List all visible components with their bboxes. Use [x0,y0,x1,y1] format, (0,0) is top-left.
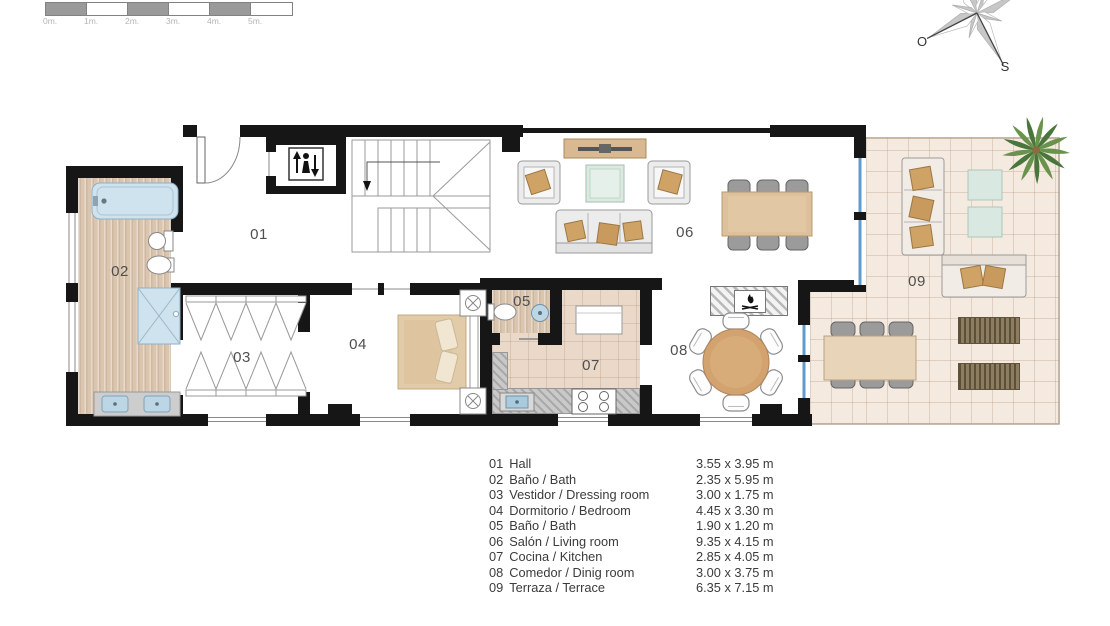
legend-room-name: Baño / Bath [509,472,576,487]
legend-room-name: Hall [509,456,531,471]
stairs-down-arrow [363,181,371,191]
legend-room-dimensions: 2.35 x 5.95 m [696,472,774,488]
kitchen-sink [500,393,534,411]
bed [398,306,478,394]
toilet [149,231,174,251]
legend-room-dimensions: 9.35 x 4.15 m [696,534,774,550]
fridge [576,306,622,334]
legend-row: 09Terraza / Terrace6.35 x 7.15 m [489,580,869,596]
toilet [488,304,516,320]
legend-room-number: 06 [489,534,503,549]
legend-row: 05Baño / Bath1.90 x 1.20 m [489,518,869,534]
legend-room-dimensions: 2.85 x 4.05 m [696,549,774,565]
legend-room-name: Baño / Bath [509,518,576,533]
room-label-08: 08 [670,342,688,359]
wardrobe-top [186,296,306,340]
legend-room-number: 08 [489,565,503,580]
legend-room-number: 09 [489,580,503,595]
compass-west-label: O [917,34,927,49]
legend-row: 03Vestidor / Dressing room3.00 x 1.75 m [489,487,869,503]
stove [572,389,616,414]
armchair [518,161,560,204]
legend-room-dimensions: 3.55 x 3.95 m [696,456,774,472]
bathtub [92,183,178,219]
room-label-05: 05 [513,293,531,310]
entrance-door [197,137,240,183]
palm-tree-icon [1002,116,1070,184]
round-dining-table [703,329,769,395]
legend-room-dimensions: 1.90 x 1.20 m [696,518,774,534]
shower [138,288,180,344]
legend-room-name: Vestidor / Dressing room [509,487,649,502]
room-label-03: 03 [233,349,251,366]
legend-room-name: Cocina / Kitchen [509,549,602,564]
legend-room-name: Terraza / Terrace [509,580,605,595]
terrace-sofa-vertical [902,158,944,255]
nightstand [460,388,486,414]
double-vanity [94,392,180,416]
room-label-02: 02 [111,263,129,280]
armchair [648,161,690,204]
floorplan-page: 0m.1m.2m.3m.4m.5m. [0,0,1110,626]
dining-table [722,180,812,250]
legend-room-name: Comedor / Dinig room [509,565,634,580]
legend-room-dimensions: 6.35 x 7.15 m [696,580,774,596]
room-label-09: 09 [908,273,926,290]
outdoor-dining-table [824,322,916,388]
legend-row: 02Baño / Bath2.35 x 5.95 m [489,472,869,488]
washbasin [532,305,549,322]
sofa [556,210,652,253]
side-table [968,170,1002,237]
room-label-06: 06 [676,224,694,241]
coffee-table [586,165,624,202]
legend-row: 04Dormitorio / Bedroom4.45 x 3.30 m [489,503,869,519]
terrace-sofa-horizontal [942,255,1026,297]
legend-room-number: 07 [489,549,503,564]
legend-room-number: 03 [489,487,503,502]
elevator-icon [289,148,323,180]
room-label-01: 01 [250,226,268,243]
legend-row: 07Cocina / Kitchen2.85 x 4.05 m [489,549,869,565]
legend: 01Hall3.55 x 3.95 m02Baño / Bath2.35 x 5… [489,456,869,596]
legend-row: 08Comedor / Dinig room3.00 x 3.75 m [489,565,869,581]
legend-room-number: 01 [489,456,503,471]
compass-south-label: S [1001,59,1010,74]
stairs [352,140,490,252]
nightstand [460,290,486,316]
compass-rose: O S [917,0,1025,74]
legend-room-dimensions: 3.00 x 3.75 m [696,565,774,581]
elevator [266,137,346,194]
tv-console [564,139,646,158]
room-label-07: 07 [582,357,600,374]
legend-room-name: Dormitorio / Bedroom [509,503,631,518]
bidet [147,256,174,274]
legend-room-dimensions: 3.00 x 1.75 m [696,487,774,503]
legend-room-number: 04 [489,503,503,518]
room-label-04: 04 [349,336,367,353]
legend-row: 01Hall3.55 x 3.95 m [489,456,869,472]
legend-room-number: 05 [489,518,503,533]
legend-row: 06Salón / Living room9.35 x 4.15 m [489,534,869,550]
legend-room-name: Salón / Living room [509,534,619,549]
legend-room-number: 02 [489,472,503,487]
legend-room-dimensions: 4.45 x 3.30 m [696,503,774,519]
